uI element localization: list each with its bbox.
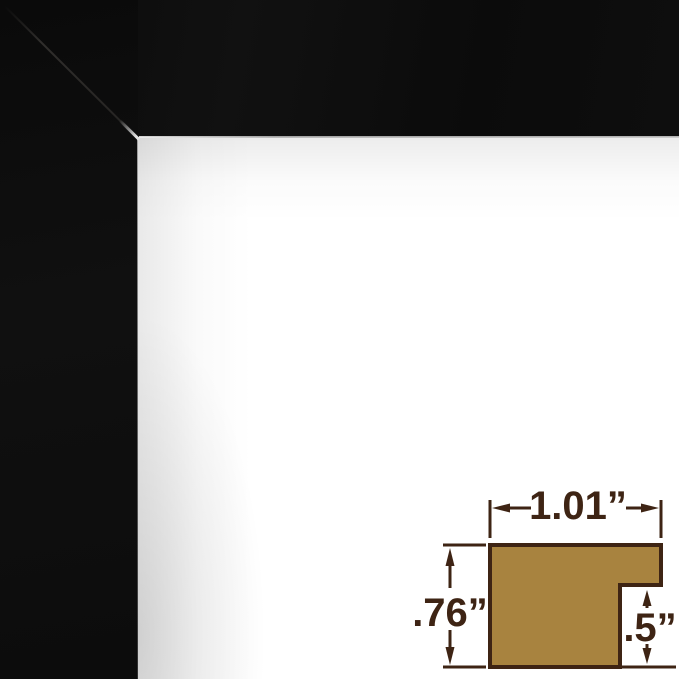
rabbet-depth-dimension: .5” [623, 590, 676, 664]
product-image: 1.01” .76” .5” [0, 0, 679, 679]
height-dimension: .76” [412, 548, 488, 665]
frame-inner-edge-highlight-left [137, 137, 139, 679]
profile-dimension-diagram: 1.01” .76” .5” [400, 470, 679, 679]
width-dimension: 1.01” [492, 484, 659, 528]
frame-inner-edge-highlight-top [139, 136, 679, 138]
frame-left-rail [0, 0, 138, 679]
rabbet-depth-dimension-label: .5” [623, 606, 676, 650]
width-dimension-label: 1.01” [529, 484, 627, 528]
height-dimension-label: .76” [412, 591, 488, 635]
